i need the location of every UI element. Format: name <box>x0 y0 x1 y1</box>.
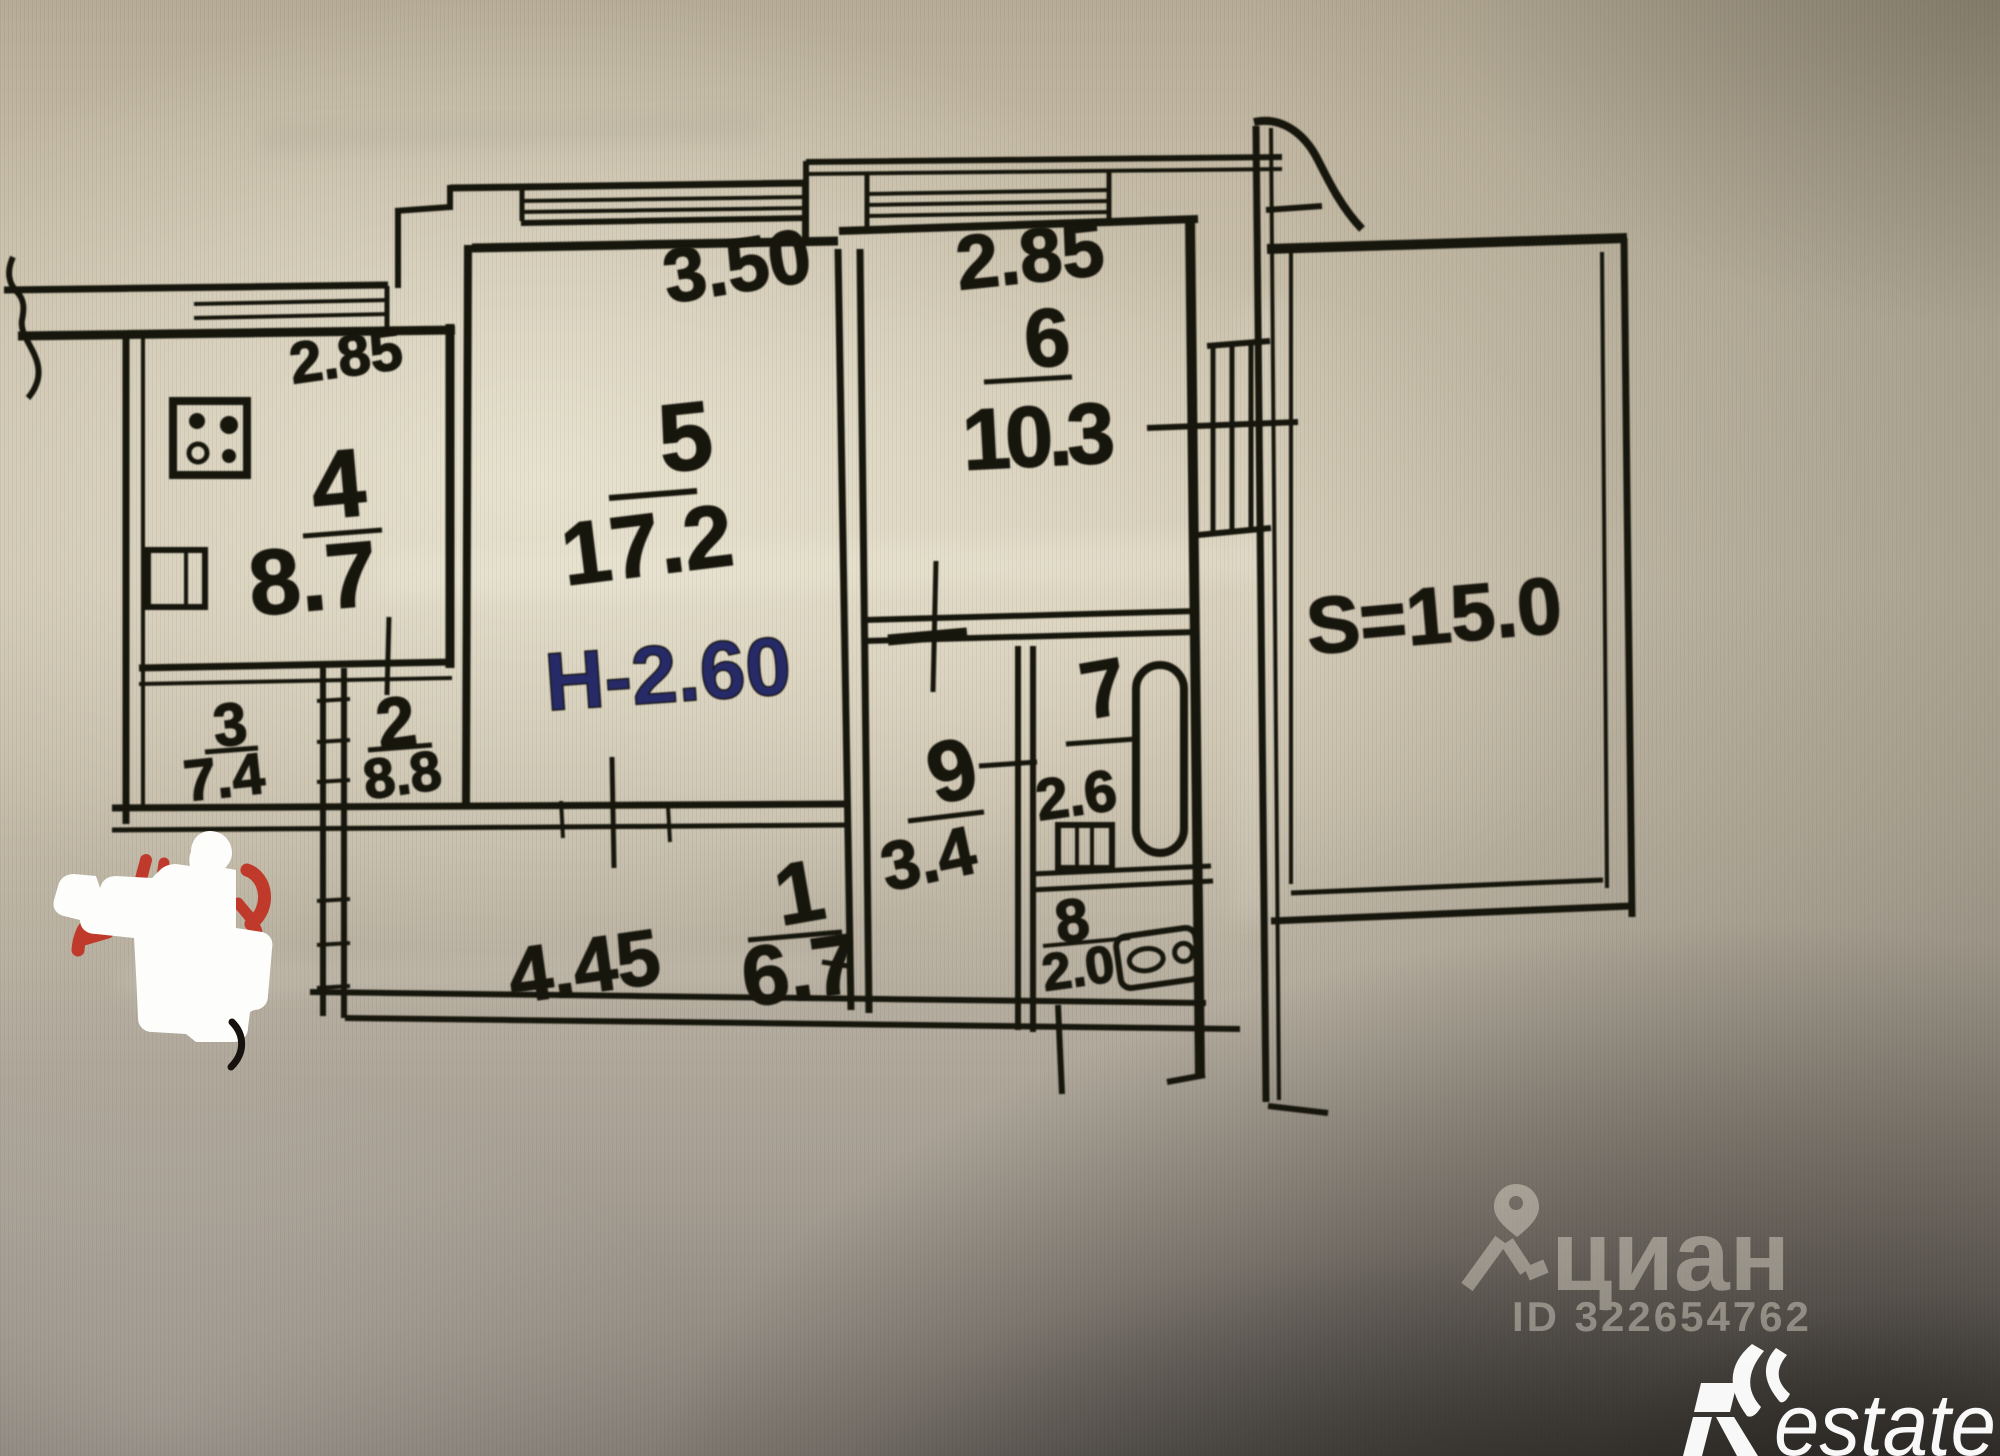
svg-text:8.7: 8.7 <box>245 523 381 636</box>
svg-text:3.50: 3.50 <box>657 213 816 320</box>
svg-text:6.7: 6.7 <box>736 915 865 1024</box>
svg-text:3.4: 3.4 <box>874 812 982 906</box>
svg-text:Н-2.60: Н-2.60 <box>542 621 794 729</box>
svg-text:4.45: 4.45 <box>503 912 666 1020</box>
svg-text:9: 9 <box>917 719 987 824</box>
svg-text:ID 322654762: ID 322654762 <box>1512 1293 1812 1340</box>
svg-text:10.3: 10.3 <box>960 385 1114 489</box>
svg-text:17.2: 17.2 <box>556 485 738 604</box>
svg-text:2.85: 2.85 <box>952 206 1108 306</box>
svg-text:S=15.0: S=15.0 <box>1303 560 1566 671</box>
svg-text:2.6: 2.6 <box>1032 758 1121 834</box>
svg-text:estate: estate <box>1774 1375 1996 1456</box>
svg-text:7: 7 <box>1074 641 1133 736</box>
svg-text:5: 5 <box>653 381 717 493</box>
svg-text:6: 6 <box>1021 292 1073 386</box>
